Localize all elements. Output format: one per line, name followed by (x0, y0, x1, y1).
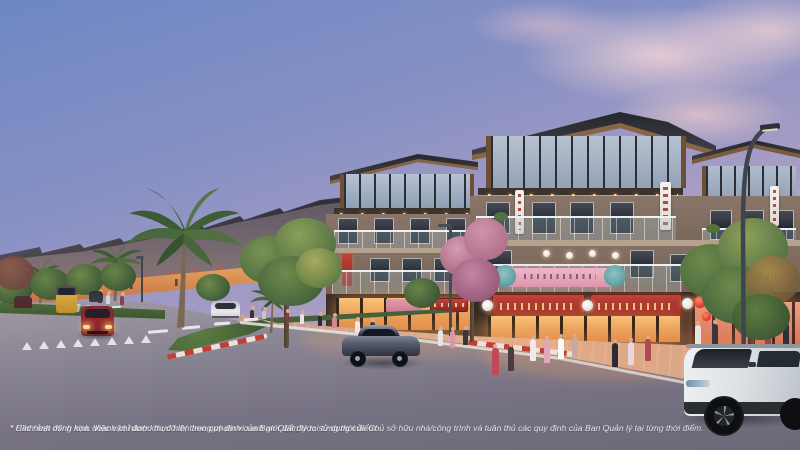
windshield (85, 309, 110, 318)
pedestrian (285, 313, 289, 322)
city-bus (56, 286, 77, 313)
headlight (686, 380, 710, 387)
distant-dark-red-car (14, 296, 32, 308)
pedestrian (463, 330, 468, 345)
hanging-lantern (589, 250, 596, 257)
pedestrian (628, 342, 634, 365)
wheel (350, 351, 366, 367)
pedestrian (508, 347, 514, 371)
pedestrian (318, 316, 322, 326)
rear-wheel (780, 398, 800, 430)
pedestrian (438, 330, 443, 346)
hanging-lantern (566, 252, 573, 259)
pedestrian (450, 331, 455, 348)
roof-rail (686, 344, 800, 348)
mirror (748, 362, 756, 367)
grille (87, 331, 108, 334)
scene: * Hình ảnh minh họa. Việc vận hành khu đ… (0, 0, 800, 450)
bumper (212, 316, 239, 318)
headlight (83, 325, 90, 329)
pedestrian (558, 338, 564, 359)
shophouse-b-attic-glass (340, 174, 474, 208)
bus-windshield (58, 288, 75, 295)
rear-window (215, 303, 236, 309)
median-tree (100, 262, 136, 291)
pedestrian (530, 339, 536, 361)
street-lamp-small-head (136, 256, 144, 259)
white-suv (684, 336, 800, 428)
pedestrian (262, 311, 266, 319)
red-car (81, 306, 114, 336)
disclaimer-line-2: * Các hoạt động kinh doanh chỉ được thực… (10, 423, 704, 435)
pedestrian (250, 310, 254, 318)
round-shop-sign (582, 300, 593, 311)
white-sedan-rear (211, 301, 240, 318)
blossom-tree (436, 210, 510, 342)
pedestrian (645, 339, 651, 361)
decorative-pink-sign (504, 268, 616, 287)
wheel (392, 351, 408, 367)
pedestrian (120, 296, 124, 305)
small-gray-car (89, 291, 103, 302)
hanging-lantern (612, 252, 619, 259)
pedestrian (106, 295, 110, 304)
street-lamp-small (141, 258, 143, 302)
side-window (757, 351, 800, 367)
median-tree (196, 274, 230, 301)
pedestrian (332, 317, 337, 328)
pedestrian (492, 348, 499, 375)
pedestrian (572, 337, 578, 357)
shop-sign-red (590, 294, 682, 318)
street-tree-canopy (232, 208, 344, 348)
pedestrian (544, 340, 550, 363)
windshield (692, 349, 753, 368)
hanging-lantern (543, 250, 550, 257)
street-tree (404, 278, 440, 308)
headlight (105, 325, 112, 329)
front-wheel (704, 396, 744, 436)
gray-sports-sedan (342, 325, 420, 365)
attic-glass (486, 136, 686, 188)
pedestrian (300, 314, 304, 324)
pedestrian (612, 343, 618, 367)
